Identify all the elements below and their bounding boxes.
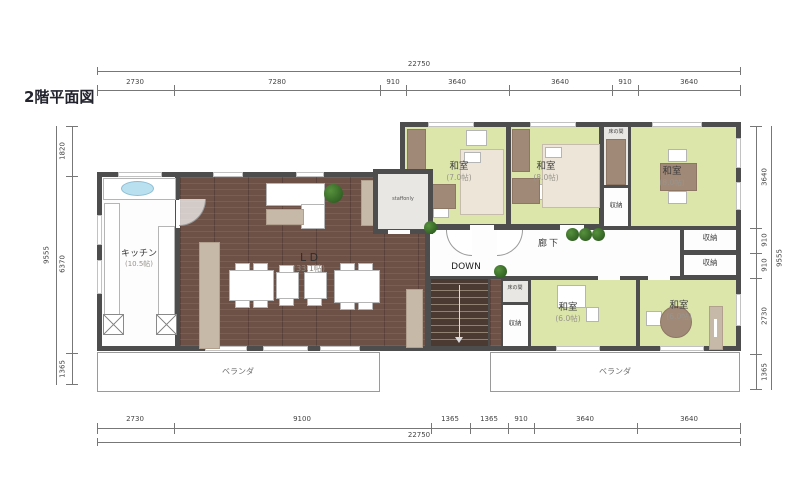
tokonoma-bottom-label: 床の間 [507, 286, 522, 292]
stair-arrow-icon [455, 337, 463, 343]
dining-table [276, 272, 299, 299]
dimension-tick [97, 438, 98, 446]
plant-icon [424, 221, 437, 234]
dim-bottom-seg: 910 [514, 416, 527, 423]
dimension-tick [406, 85, 407, 96]
staff-room-label: staffonly [388, 196, 418, 202]
dim-left-total: 9555 [44, 246, 51, 264]
dimension-tick [66, 384, 78, 385]
washitsu-bottom-mid-label: 和室 [558, 303, 577, 313]
dim-left-seg: 6370 [60, 255, 67, 273]
dimension-tick [97, 85, 98, 96]
sofa [266, 183, 325, 206]
wardrobe [512, 129, 530, 172]
tokonoma-cabinet [606, 139, 626, 185]
stair-landing-strip [490, 279, 501, 346]
dimension-tick [750, 278, 762, 279]
dimension-tick [97, 423, 98, 434]
chair [433, 208, 449, 218]
dimension-line [97, 71, 741, 72]
dimension-tick [174, 85, 175, 96]
dimension-tick [66, 353, 78, 354]
kitchen-appliance-icon [156, 314, 177, 335]
pillow [545, 147, 562, 158]
dimension-tick [470, 423, 471, 434]
shelf [466, 130, 487, 146]
dimension-tick [740, 438, 741, 446]
dim-left-seg: 1365 [60, 360, 67, 378]
dresser-handle [714, 319, 717, 337]
washitsu-top-right-label: 和室 [662, 167, 681, 177]
dim-right-seg: 910 [762, 258, 769, 271]
window [736, 294, 741, 326]
dim-top-seg: 910 [386, 79, 399, 86]
dim-top-seg: 7280 [268, 79, 286, 86]
coffee-table [266, 209, 304, 225]
kitchen-label: キッチン [121, 250, 157, 260]
window [97, 215, 102, 245]
kitchen-counter-right [158, 226, 175, 316]
dimension-tick [637, 423, 638, 434]
window [556, 346, 600, 351]
dim-bottom-seg: 1365 [480, 416, 498, 423]
washitsu-bottom-mid-size: (6.0帖) [555, 315, 580, 323]
dimension-tick [66, 176, 78, 177]
chair [668, 149, 687, 162]
dimension-line [72, 126, 73, 385]
dimension-tick [508, 423, 509, 434]
dim-bottom-seg: 3640 [680, 416, 698, 423]
kitchen-appliance-icon [103, 314, 124, 335]
corridor-label: 廊下 [538, 240, 560, 250]
dimension-tick [750, 389, 762, 390]
dimension-tick [509, 85, 510, 96]
window [736, 138, 741, 168]
dimension-tick [431, 423, 432, 434]
washitsu-top-left-size: (7.0帖) [446, 174, 471, 182]
chair [586, 307, 599, 322]
stair-direction-line [459, 285, 460, 337]
dimension-line [771, 126, 772, 390]
page-title: 2階平面図 [24, 86, 94, 107]
washitsu-top-left-label: 和室 [449, 162, 468, 172]
dresser [709, 306, 723, 350]
washitsu-top-mid-label: 和室 [536, 162, 555, 172]
window [213, 172, 243, 177]
door-opening [648, 276, 670, 280]
window [660, 346, 704, 351]
dimension-line [756, 126, 757, 390]
kitchen-size: (10.5帖) [125, 261, 153, 269]
storage-right-1-label: 収納 [703, 234, 718, 242]
window [428, 122, 474, 127]
balcony-left-label: ベランダ [222, 366, 254, 377]
dimension-tick [740, 85, 741, 96]
dim-top-total: 22750 [408, 61, 430, 68]
dim-bottom-seg: 2730 [126, 416, 144, 423]
storage-bottom-label: 収納 [509, 320, 522, 327]
dim-right-seg: 910 [762, 233, 769, 246]
door-opening [470, 225, 494, 230]
dimension-line [97, 442, 741, 443]
dim-right-seg: 1365 [762, 363, 769, 381]
sofa [301, 204, 325, 229]
chair [668, 191, 687, 204]
plant-icon [494, 265, 507, 278]
balcony-right-label: ベランダ [599, 366, 631, 377]
dimension-tick [97, 67, 98, 75]
door-opening [388, 230, 410, 234]
living-dining-label: L D [300, 252, 318, 264]
dim-top-seg: 2730 [126, 79, 144, 86]
storage-right-2-label: 収納 [703, 259, 718, 267]
dining-table [334, 270, 380, 303]
dining-table [304, 272, 327, 299]
stairs-down-label: DOWN [451, 263, 481, 273]
dimension-line [97, 428, 741, 429]
window [320, 346, 360, 351]
window [530, 122, 576, 127]
dimension-tick [174, 423, 175, 434]
ld-counter [199, 242, 220, 349]
dim-right-seg: 3640 [762, 168, 769, 186]
dim-top-seg: 910 [618, 79, 631, 86]
plant-icon [592, 228, 605, 241]
window [263, 346, 308, 351]
dim-bottom-total: 22750 [408, 432, 430, 439]
dim-bottom-seg: 1365 [441, 416, 459, 423]
dimension-tick [380, 85, 381, 96]
dimension-tick [66, 126, 78, 127]
dim-top-seg: 3640 [448, 79, 466, 86]
kitchen-counter-left [104, 203, 120, 315]
dim-left-seg: 1820 [60, 142, 67, 160]
dimension-tick [750, 354, 762, 355]
dim-bottom-seg: 3640 [576, 416, 594, 423]
window [296, 172, 324, 177]
washitsu-bottom-right-size: (6.0帖) [666, 313, 691, 321]
cabinet [406, 289, 423, 348]
dimension-tick [750, 253, 762, 254]
plant-icon [566, 228, 579, 241]
dimension-tick [638, 85, 639, 96]
tokonoma-top-label: 床の間 [608, 130, 623, 136]
plant-icon [579, 228, 592, 241]
window [97, 260, 102, 294]
dimension-tick [750, 126, 762, 127]
dimension-tick [740, 423, 741, 434]
living-dining-size: (33.1帖) [293, 265, 325, 274]
washitsu-bottom-right-label: 和室 [669, 301, 688, 311]
window [736, 182, 741, 210]
sink-icon [121, 181, 154, 196]
dimension-line [97, 90, 741, 91]
dim-right-seg: 2730 [762, 307, 769, 325]
dim-bottom-seg: 9100 [293, 416, 311, 423]
floor-plan-canvas: 2階平面図 22750 2730 7280 910 3640 3640 910 … [0, 0, 800, 494]
dining-table [229, 270, 274, 301]
dimension-tick [740, 67, 741, 75]
window [118, 172, 162, 177]
washitsu-top-mid-size: (8.0帖) [533, 174, 558, 182]
storage-top-strip-label: 収納 [610, 202, 623, 209]
dimension-tick [534, 423, 535, 434]
dim-top-seg: 3640 [551, 79, 569, 86]
washitsu-top-right-size: (8.0帖) [659, 179, 684, 187]
window [652, 122, 702, 127]
dimension-tick [612, 85, 613, 96]
dim-top-seg: 3640 [680, 79, 698, 86]
door-opening [598, 276, 620, 280]
plant-icon [324, 184, 343, 203]
dimension-line [56, 126, 57, 385]
dim-right-total: 9555 [777, 249, 784, 267]
dimension-tick [750, 228, 762, 229]
